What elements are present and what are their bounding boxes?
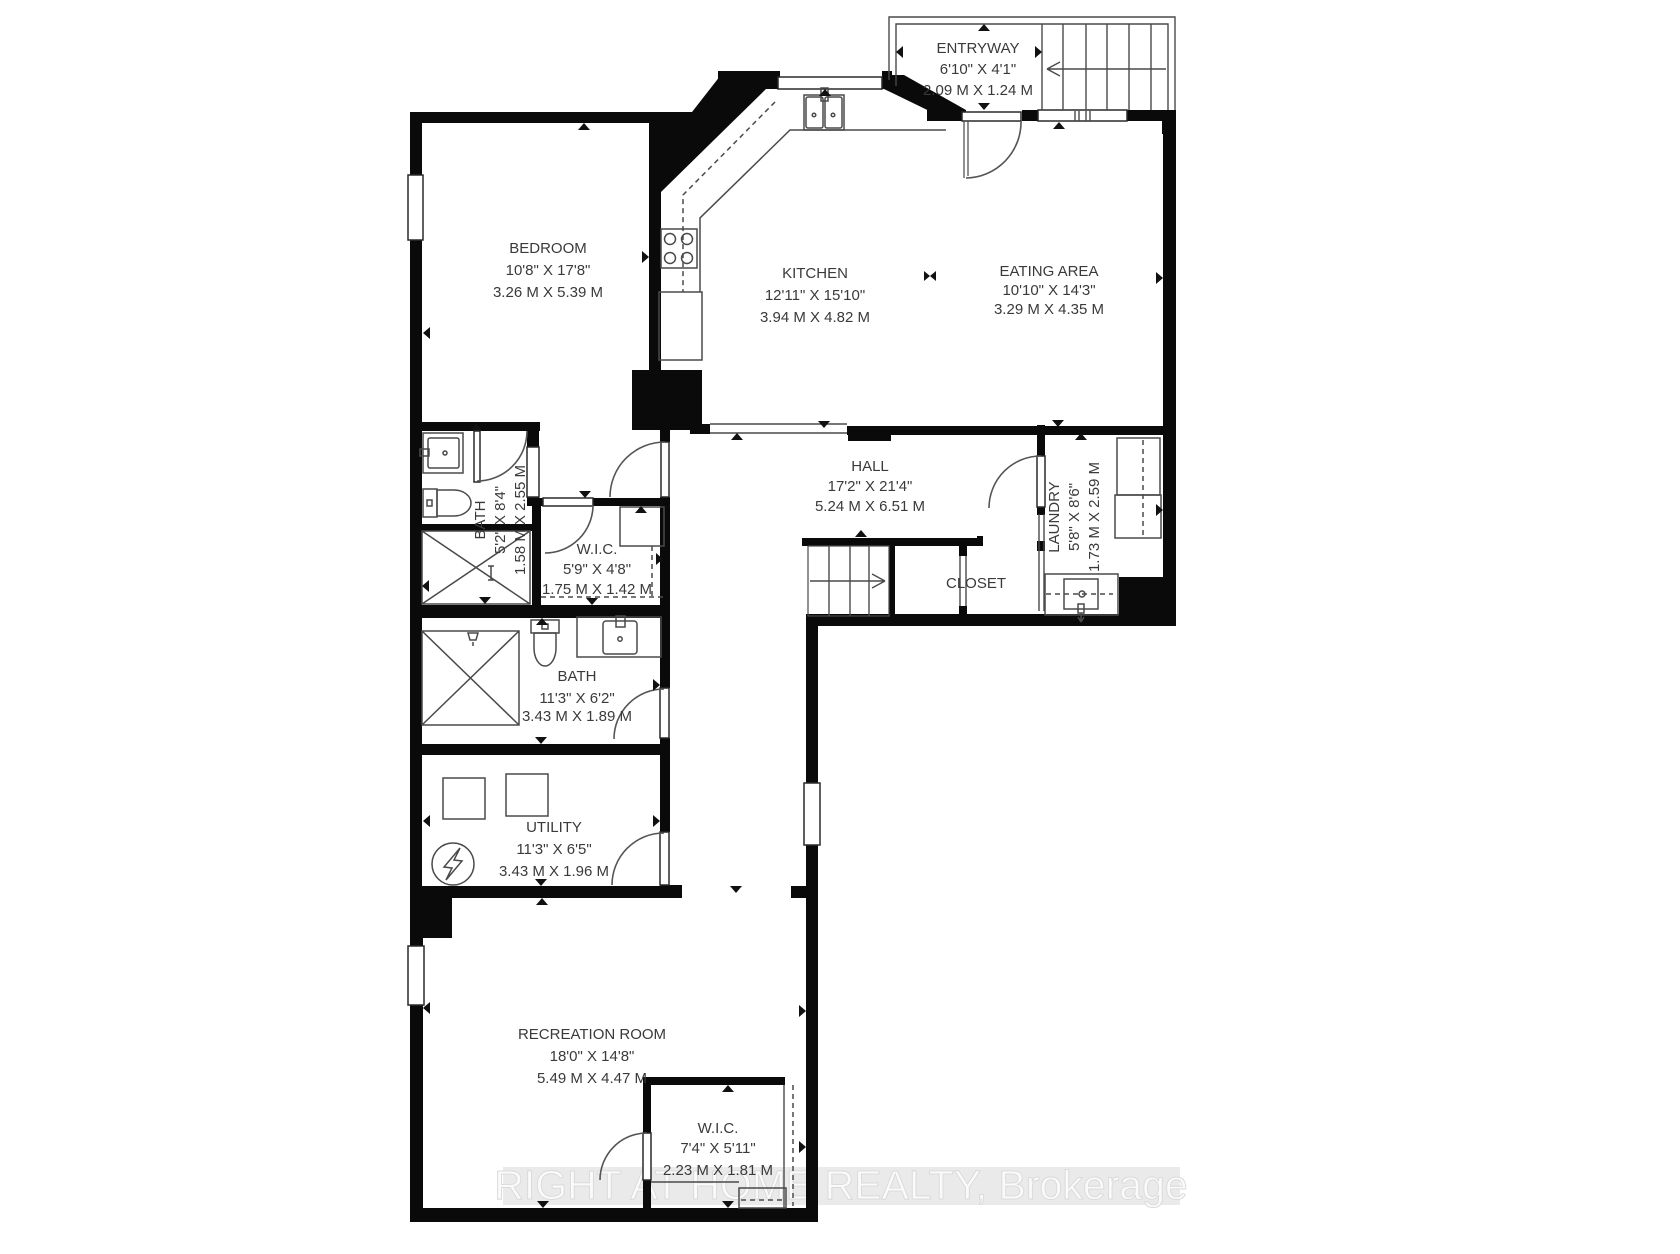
svg-text:11'3" X 6'2": 11'3" X 6'2" [539,690,614,707]
svg-text:EATING AREA: EATING AREA [1000,263,1099,280]
svg-text:5.24 M X 6.51 M: 5.24 M X 6.51 M [815,498,925,515]
svg-text:RECREATION ROOM: RECREATION ROOM [518,1026,666,1043]
svg-text:3.29 M X 4.35 M: 3.29 M X 4.35 M [994,301,1104,318]
svg-text:1.75 M X 1.42 M: 1.75 M X 1.42 M [542,581,652,598]
svg-text:5'9" X 4'8": 5'9" X 4'8" [563,561,631,578]
svg-text:17'2" X 21'4": 17'2" X 21'4" [828,478,913,495]
svg-text:ENTRYWAY: ENTRYWAY [936,40,1019,57]
svg-text:CLOSET: CLOSET [946,575,1006,592]
svg-text:2.23 M X 1.81 M: 2.23 M X 1.81 M [663,1162,773,1179]
svg-text:3.43 M X 1.96 M: 3.43 M X 1.96 M [499,863,609,880]
svg-text:LAUNDRY: LAUNDRY [1046,481,1063,552]
svg-text:18'0" X 14'8": 18'0" X 14'8" [550,1048,635,1065]
svg-text:1.58 M X 2.55 M: 1.58 M X 2.55 M [512,465,529,575]
svg-text:BATH: BATH [558,668,597,685]
svg-text:5.49 M X 4.47 M: 5.49 M X 4.47 M [537,1070,647,1087]
svg-text:W.I.C.: W.I.C. [577,541,618,558]
svg-text:1.73 M X 2.59 M: 1.73 M X 2.59 M [1086,462,1103,572]
svg-text:HALL: HALL [851,458,889,475]
svg-text:5'8" X 8'6": 5'8" X 8'6" [1066,483,1083,551]
svg-text:UTILITY: UTILITY [526,819,582,836]
svg-text:10'10" X 14'3": 10'10" X 14'3" [1002,282,1095,299]
svg-text:3.26 M X 5.39 M: 3.26 M X 5.39 M [493,284,603,301]
svg-text:7'4" X 5'11": 7'4" X 5'11" [680,1140,755,1157]
svg-text:10'8" X 17'8": 10'8" X 17'8" [506,262,591,279]
svg-text:W.I.C.: W.I.C. [698,1120,739,1137]
svg-text:2.09 M X 1.24 M: 2.09 M X 1.24 M [923,82,1033,99]
svg-text:6'10" X 4'1": 6'10" X 4'1" [940,61,1016,78]
svg-text:11'3" X 6'5": 11'3" X 6'5" [516,841,591,858]
svg-text:BATH: BATH [472,501,489,540]
svg-text:KITCHEN: KITCHEN [782,265,848,282]
svg-text:RIGHT AT HOME REALTY, Brokerag: RIGHT AT HOME REALTY, Brokerage [494,1162,1187,1208]
svg-text:12'11" X 15'10": 12'11" X 15'10" [765,287,865,304]
svg-text:BEDROOM: BEDROOM [509,240,587,257]
svg-text:3.43 M X 1.89 M: 3.43 M X 1.89 M [522,708,632,725]
svg-text:3.94 M X 4.82 M: 3.94 M X 4.82 M [760,309,870,326]
svg-text:5'2" X 8'4": 5'2" X 8'4" [492,486,509,554]
